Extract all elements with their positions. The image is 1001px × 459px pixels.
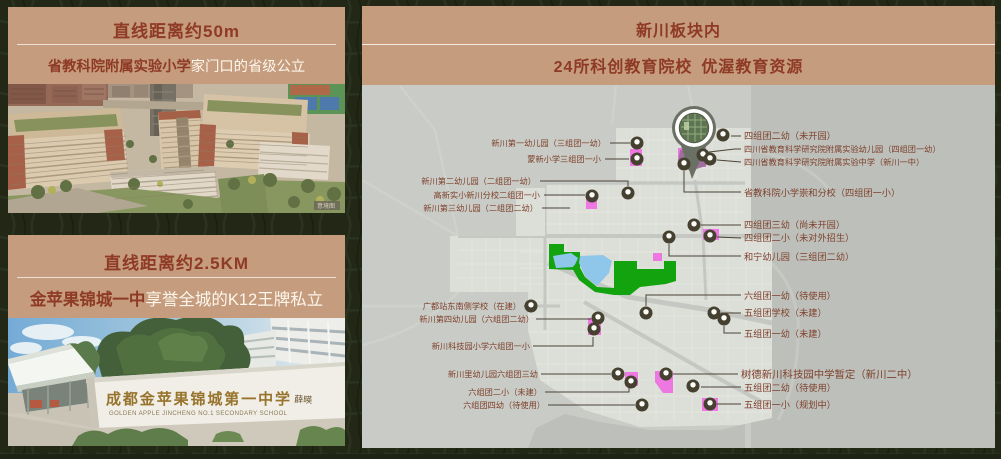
svg-text:五组团一幼（未建）: 五组团一幼（未建） (744, 328, 827, 339)
svg-text:四组团二幼（未开园）: 四组团二幼（未开园） (744, 130, 836, 141)
svg-text:五组团学校（未建）: 五组团学校（未建） (744, 307, 827, 318)
svg-text:树德新川科技园中学暂定（新川二中）: 树德新川科技园中学暂定（新川二中） (741, 368, 918, 381)
svg-text:蒙新小学三组团一小: 蒙新小学三组团一小 (527, 154, 601, 164)
svg-text:四川省教育科学研究院附属实验中学（新川一中）: 四川省教育科学研究院附属实验中学（新川一中） (744, 157, 924, 167)
svg-text:四组团二小（未对外招生）: 四组团二小（未对外招生） (744, 232, 854, 243)
svg-text:六组团二小（未建）: 六组团二小（未建） (468, 387, 542, 397)
svg-text:意境图: 意境图 (317, 202, 335, 210)
svg-text:高新实小新川分校二组团一小: 高新实小新川分校二组团一小 (434, 190, 540, 200)
svg-text:新川第一幼儿园（三组团一幼）: 新川第一幼儿园（三组团一幼） (491, 138, 606, 148)
svg-text:新川里幼儿园六组团三幼: 新川里幼儿园六组团三幼 (448, 369, 538, 379)
svg-text:四川省教育科学研究院附属实验幼儿园（四组团一幼）: 四川省教育科学研究院附属实验幼儿园（四组团一幼） (744, 144, 941, 154)
svg-text:广都站东南侧学校（在建）: 广都站东南侧学校（在建） (423, 301, 521, 311)
svg-text:四组团三幼（尚未开园）: 四组团三幼（尚未开园） (744, 219, 845, 230)
svg-text:薛暎: 薛暎 (294, 393, 313, 405)
svg-text:五组团二幼（待使用）: 五组团二幼（待使用） (744, 382, 836, 393)
svg-text:新川科技园小学六组团一小: 新川科技园小学六组团一小 (432, 341, 530, 351)
svg-text:六组团四幼（待使用）: 六组团四幼（待使用） (463, 400, 545, 410)
svg-text:新川第四幼儿园（六组团二幼）: 新川第四幼儿园（六组团二幼） (419, 314, 534, 324)
svg-text:GOLDEN APPLE JINCHENG NO.1 SEC: GOLDEN APPLE JINCHENG NO.1 SECONDARY SCH… (109, 411, 288, 417)
svg-text:新川第二幼儿园（二组团一幼）: 新川第二幼儿园（二组团一幼） (421, 176, 536, 186)
svg-text:新川第三幼儿园（二组团二幼）: 新川第三幼儿园（二组团二幼） (423, 203, 538, 213)
svg-text:省教科院小学崇和分校（四组团一小）: 省教科院小学崇和分校（四组团一小） (744, 187, 900, 198)
svg-text:和宁幼儿园（三组团二幼）: 和宁幼儿园（三组团二幼） (744, 251, 854, 262)
svg-text:成都金苹果锦城第一中学: 成都金苹果锦城第一中学 (106, 390, 290, 408)
svg-text:六组团一幼（待使用）: 六组团一幼（待使用） (744, 290, 836, 301)
svg-text:五组团一小（规划中）: 五组团一小（规划中） (744, 399, 836, 410)
